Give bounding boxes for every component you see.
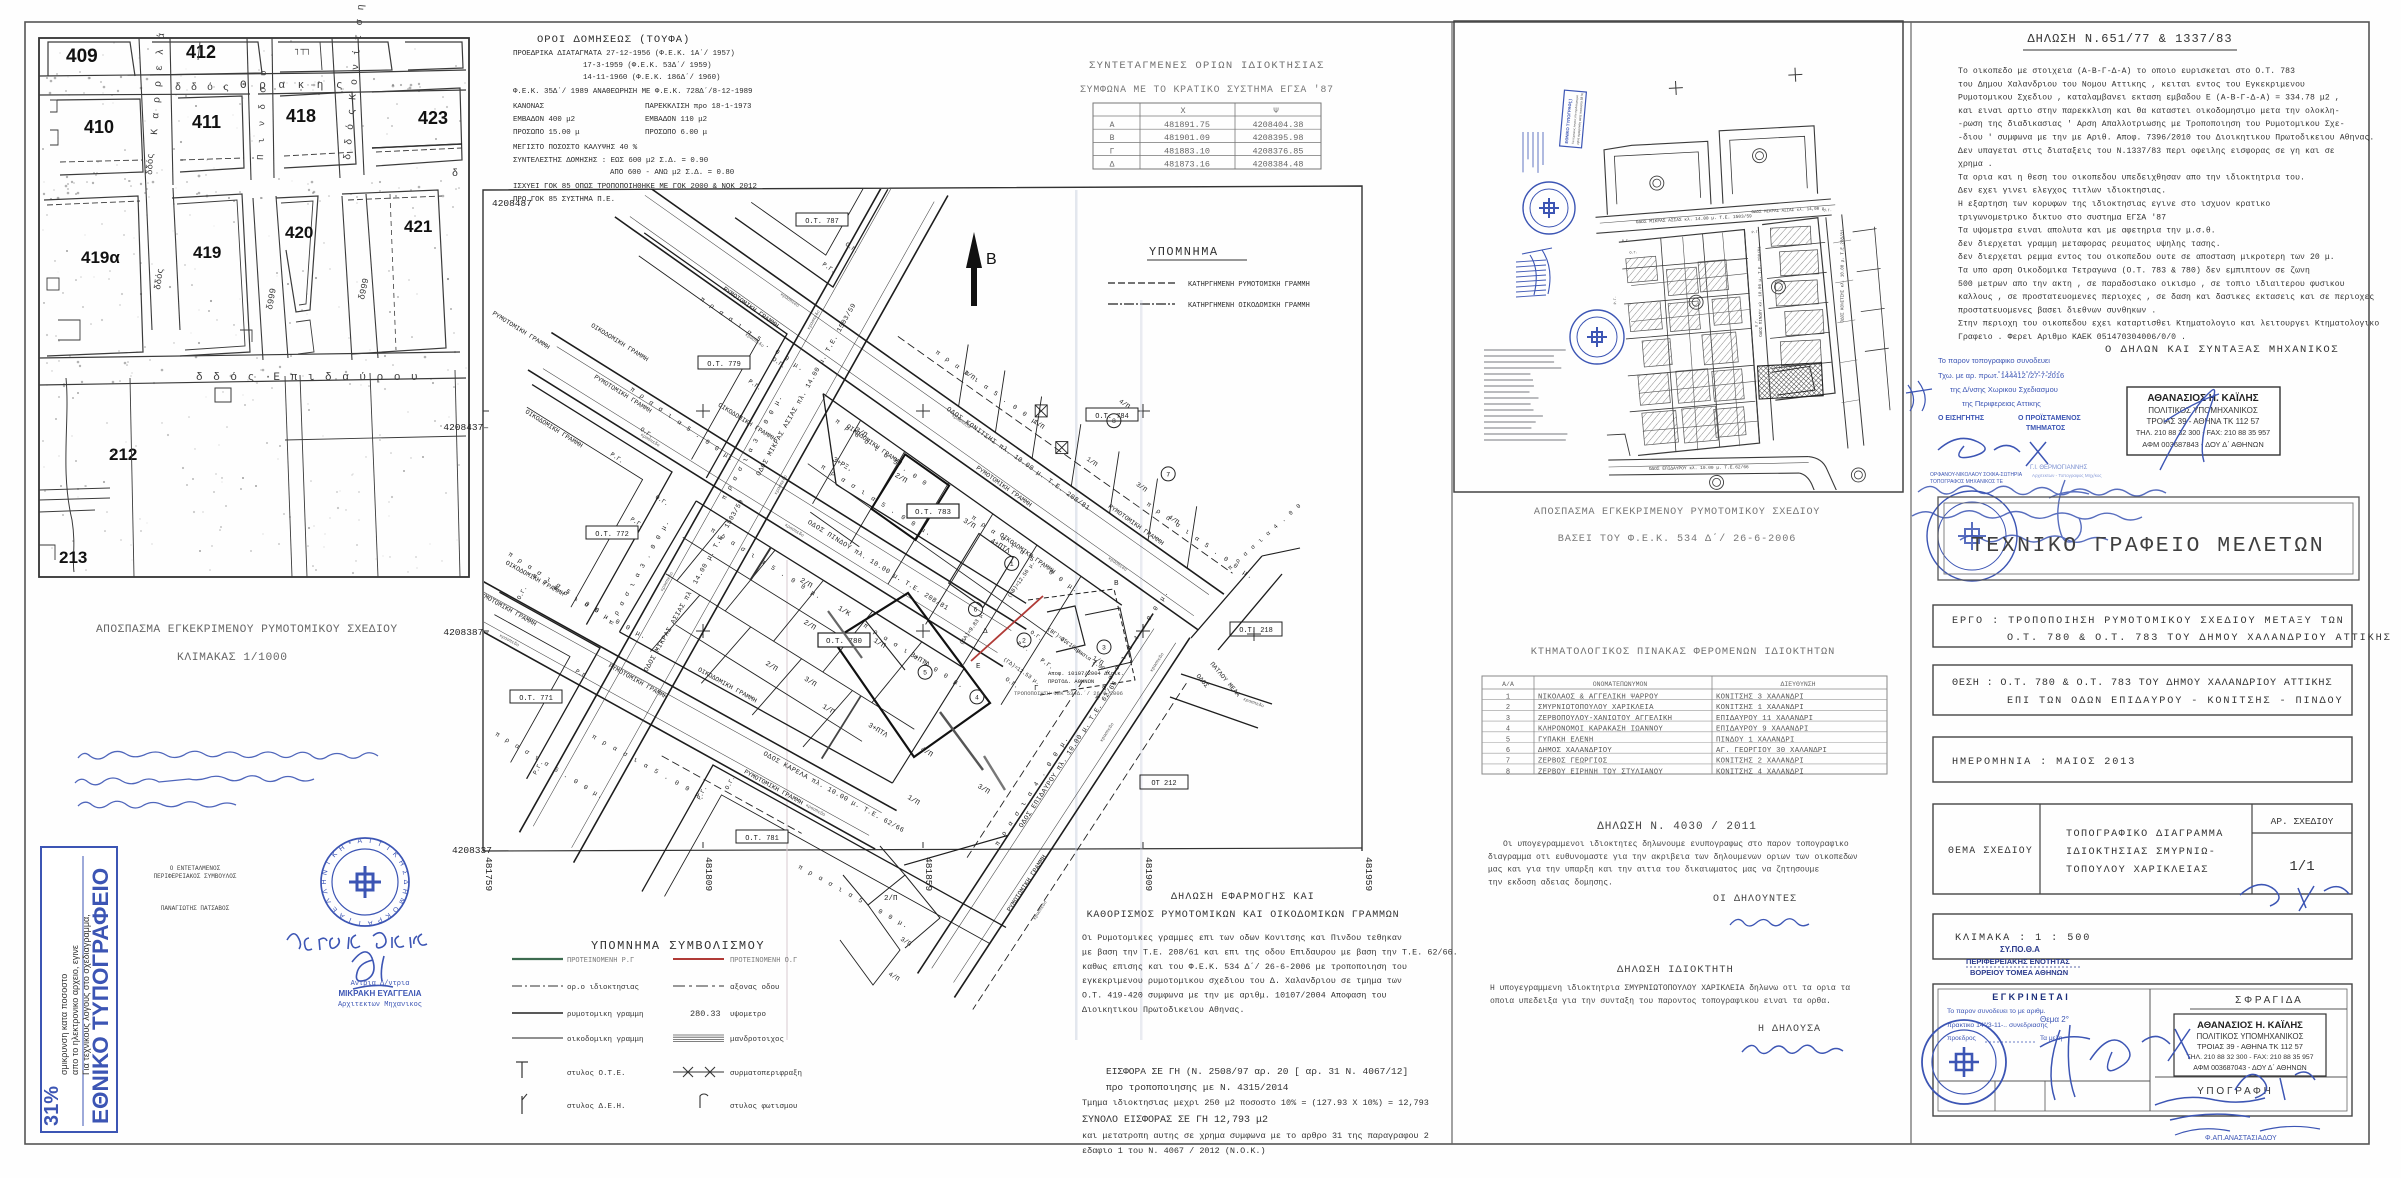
svg-text:5: 5 bbox=[1506, 736, 1510, 744]
svg-text:ΟΔΟΣ ΚΟΝΙΤΣΗΣ κλ. 10.00 μ. Τ.Ε: ΟΔΟΣ ΚΟΝΙΤΣΗΣ κλ. 10.00 μ. Τ.Ε.208/81 bbox=[1840, 229, 1845, 322]
svg-text:ΚΟΝΙΤΣΗΣ 1 ΧΑΛΑΝΔΡΙ: ΚΟΝΙΤΣΗΣ 1 ΧΑΛΑΝΔΡΙ bbox=[1716, 704, 1804, 712]
svg-text:μανδροτοιχος: μανδροτοιχος bbox=[730, 1036, 784, 1044]
svg-text:ΓΥΠΑΚΗ ΕΛΕΝΗ: ΓΥΠΑΚΗ ΕΛΕΝΗ bbox=[1538, 736, 1594, 744]
svg-text:Ρυμοτομικου Σχεδιου , καταλαμβ: Ρυμοτομικου Σχεδιου , καταλαμβανει εκτασ… bbox=[1958, 94, 2340, 103]
svg-text:δ δ ό ς ·Ε π ι δ α ύ ρ ο υ: δ δ ό ς ·Ε π ι δ α ύ ρ ο υ bbox=[196, 372, 420, 384]
svg-text:ΚΑΝΟΝΑΣ: ΚΑΝΟΝΑΣ bbox=[513, 103, 545, 111]
svg-text:8: 8 bbox=[1506, 768, 1510, 776]
svg-text:ΠΟΛΙΤΙΚΟΣ ΥΠΟΜΗΧΑΝΙΚΟΣ: ΠΟΛΙΤΙΚΟΣ ΥΠΟΜΗΧΑΝΙΚΟΣ bbox=[2197, 1032, 2304, 1041]
svg-text:8: 8 bbox=[1112, 418, 1116, 425]
svg-text:διαγραμμα οτι ευθυνομαστε για: διαγραμμα οτι ευθυνομαστε για την ακριβε… bbox=[1488, 853, 1858, 862]
svg-text:ΕΠΙΔΑΥΡΟΥ 9 ΧΑΛΑΝΔΡΙ: ΕΠΙΔΑΥΡΟΥ 9 ΧΑΛΑΝΔΡΙ bbox=[1716, 726, 1809, 734]
svg-text:τριγωνομετρικο δικτυο στο συστ: τριγωνομετρικο δικτυο στο συστημα ΕΓΣΑ '… bbox=[1958, 213, 2166, 222]
svg-text:3: 3 bbox=[1102, 645, 1106, 652]
svg-text:ΕΠΙ ΤΩΝ ΟΔΩΝ ΕΠΙΔΑΥΡΟΥ - ΚΟΝΙΤ: ΕΠΙ ΤΩΝ ΟΔΩΝ ΕΠΙΔΑΥΡΟΥ - ΚΟΝΙΤΣΗΣ - ΠΙΝΔ… bbox=[2007, 696, 2344, 707]
svg-text:Τμημα ιδιοκτησιας μεχρι 250 μ2: Τμημα ιδιοκτησιας μεχρι 250 μ2 ποσοστο 1… bbox=[1082, 1098, 1429, 1108]
svg-text:δ: δ bbox=[452, 168, 458, 180]
svg-text:ΔΗΛΩΣΗ ΕΦΑΡΜΟΓΗΣ ΚΑΙ: ΔΗΛΩΣΗ ΕΦΑΡΜΟΓΗΣ ΚΑΙ bbox=[1171, 892, 1315, 903]
svg-text:δδός: δδός bbox=[145, 153, 156, 175]
svg-text:ΕΘΝΙΚΟ ΤΥΠΟΓΡΑΦΕΙΟ: ΕΘΝΙΚΟ ΤΥΠΟΓΡΑΦΕΙΟ bbox=[88, 868, 113, 1124]
svg-text:ΕΠΙΔΑΥΡΟΥ 11 ΧΑΛΑΝΔΡΙ: ΕΠΙΔΑΥΡΟΥ 11 ΧΑΛΑΝΔΡΙ bbox=[1716, 715, 1813, 723]
svg-text:ΚΟΝΙΤΣΗΣ 4 ΧΑΛΑΝΔΡΙ: ΚΟΝΙΤΣΗΣ 4 ΧΑΛΑΝΔΡΙ bbox=[1716, 768, 1804, 776]
svg-text:ΚΛΙΜΑΚΑ : 1 : 500: ΚΛΙΜΑΚΑ : 1 : 500 bbox=[1955, 933, 2091, 944]
svg-text:ΑΘΑΝΑΣΙΟΣ Η. ΚΑΪΛΗΣ: ΑΘΑΝΑΣΙΟΣ Η. ΚΑΪΛΗΣ bbox=[2197, 1020, 2303, 1031]
svg-text:Γ: Γ bbox=[1110, 147, 1115, 156]
svg-text:ΣΥΝΟΛΟ ΕΙΣΦΟΡΑΣ ΣΕ ΓΗ 12,793 μ: ΣΥΝΟΛΟ ΕΙΣΦΟΡΑΣ ΣΕ ΓΗ 12,793 μ2 bbox=[1082, 1115, 1268, 1126]
svg-text:Ο.Τ. 787: Ο.Τ. 787 bbox=[805, 218, 839, 226]
svg-text:ΘΕΜΑ ΣΧΕΔΙΟΥ: ΘΕΜΑ ΣΧΕΔΙΟΥ bbox=[1948, 845, 2033, 856]
svg-text:ΑΦΜ 003687043 - ΔΟΥ Δ΄ ΑΘΗΝΩΝ: ΑΦΜ 003687043 - ΔΟΥ Δ΄ ΑΘΗΝΩΝ bbox=[2193, 1065, 2306, 1072]
svg-text:Δεν υπαγεται στις διαταξεις το: Δεν υπαγεται στις διαταξεις του Ν.1337/8… bbox=[1958, 147, 2335, 156]
svg-text:ΟΡΦΑΝΟΥ-ΝΙΚΟΛΑΟΥ ΣΟΦΙΑ-ΣΩΤΗΡΙΑ: ΟΡΦΑΝΟΥ-ΝΙΚΟΛΑΟΥ ΣΟΦΙΑ-ΣΩΤΗΡΙΑ bbox=[1930, 472, 2023, 478]
svg-text:212: 212 bbox=[109, 445, 137, 464]
svg-text:4208437–: 4208437– bbox=[443, 422, 489, 433]
svg-text:οποια υπεδειξα για την συνταξη: οποια υπεδειξα για την συνταξη του παρον… bbox=[1490, 997, 1831, 1006]
svg-text:Αρχιτεκτων - Τοπογραφος Μηχ/κο: Αρχιτεκτων - Τοπογραφος Μηχ/κος bbox=[2032, 473, 2102, 478]
svg-text:Ο.Τ. 779: Ο.Τ. 779 bbox=[707, 361, 741, 369]
svg-text:ΚΟΝΙΤΣΗΣ 3 ΧΑΛΑΝΔΡΙ: ΚΟΝΙΤΣΗΣ 3 ΧΑΛΑΝΔΡΙ bbox=[1716, 694, 1804, 702]
svg-text:ΕΡΓΟ : ΤΡΟΠΟΠΟΙΗΣΗ ΡΥΜΟΤΟΜΙΚΟΥ: ΕΡΓΟ : ΤΡΟΠΟΠΟΙΗΣΗ ΡΥΜΟΤΟΜΙΚΟΥ ΣΧΕΔΙΟΥ Μ… bbox=[1952, 616, 2345, 627]
svg-text:31%: 31% bbox=[41, 1086, 63, 1126]
svg-text:ΚΟΝΙΤΣΗΣ 2 ΧΑΛΑΝΔΡΙ: ΚΟΝΙΤΣΗΣ 2 ΧΑΛΑΝΔΡΙ bbox=[1716, 758, 1804, 766]
svg-text:ΣΜΥΡΝΙΩΤΟΠΟΥΛΟΥ ΧΑΡΙΚΛΕΙΑ: ΣΜΥΡΝΙΩΤΟΠΟΥΛΟΥ ΧΑΡΙΚΛΕΙΑ bbox=[1538, 704, 1654, 712]
svg-text:7: 7 bbox=[1506, 758, 1510, 766]
svg-text:με βαση την Τ.Ε. 208/61 και επ: με βαση την Τ.Ε. 208/61 και επι της οδου… bbox=[1082, 947, 1458, 957]
svg-text:ΚΑΤΗΡΓΗΜΕΝΗ ΡΥΜΟΤΟΜΙΚΗ ΓΡΑΜΜΗ: ΚΑΤΗΡΓΗΜΕΝΗ ΡΥΜΟΤΟΜΙΚΗ ΓΡΑΜΜΗ bbox=[1188, 281, 1310, 289]
svg-text:Αντρια Δ/ντρια: Αντρια Δ/ντρια bbox=[351, 980, 410, 988]
svg-text:δεν διερχεται ρεμμα εντος του: δεν διερχεται ρεμμα εντος του οικοπεδου … bbox=[1958, 253, 2335, 262]
svg-text:ΟΤ 212: ΟΤ 212 bbox=[1151, 780, 1176, 788]
svg-text:ΑΠΟΣΠΑΣΜΑ ΕΓΚΕΚΡΙΜΕΝΟΥ ΡΥΜΟΤΟΜ: ΑΠΟΣΠΑΣΜΑ ΕΓΚΕΚΡΙΜΕΝΟΥ ΡΥΜΟΤΟΜΙΚΟΥ ΣΧΕΔΙ… bbox=[1534, 507, 1820, 518]
svg-text:6: 6 bbox=[1506, 747, 1510, 755]
svg-text:ΠΡΟΕΔΡΙΚΑ ΔΙΑΤΑΓΜΑΤΑ 27-12-195: ΠΡΟΕΔΡΙΚΑ ΔΙΑΤΑΓΜΑΤΑ 27-12-1956 (Φ.Ε.Κ. … bbox=[513, 49, 735, 58]
svg-text:απο το ηλεκτρονικο αρχειο, εγι: απο το ηλεκτρονικο αρχειο, εγινε bbox=[70, 945, 80, 1075]
svg-text:2: 2 bbox=[1506, 704, 1510, 712]
svg-text:Γ.Ι. ΘΕΡΜΟΓΙΑΝΝΗΣ: Γ.Ι. ΘΕΡΜΟΓΙΑΝΝΗΣ bbox=[2030, 465, 2088, 471]
svg-text:στυλος Ο.Τ.Ε.: στυλος Ο.Τ.Ε. bbox=[567, 1070, 626, 1078]
svg-text:ΜΕΓΙΣΤΟ ΠΟΣΟΣΤΟ ΚΑΛΥΨΗΣ 40 %: ΜΕΓΙΣΤΟ ΠΟΣΟΣΤΟ ΚΑΛΥΨΗΣ 40 % bbox=[513, 144, 638, 152]
svg-text:ΟΙ ΔΗΛΟΥΝΤΕΣ: ΟΙ ΔΗΛΟΥΝΤΕΣ bbox=[1713, 894, 1797, 905]
svg-text:4208376.85: 4208376.85 bbox=[1252, 146, 1303, 156]
svg-text:πρακτικο 14"/3-11-.. συνεδριασ: πρακτικο 14"/3-11-.. συνεδριασης bbox=[1947, 1022, 2048, 1029]
svg-text:Ε: Ε bbox=[976, 663, 981, 671]
svg-text:ΔΗΛΩΣΗ Ν. 4030 / 2011: ΔΗΛΩΣΗ Ν. 4030 / 2011 bbox=[1597, 821, 1757, 833]
svg-text:481809: 481809 bbox=[703, 857, 714, 892]
svg-text:ΥΠΟΜΝΗΜΑ: ΥΠΟΜΝΗΜΑ bbox=[1149, 245, 1219, 259]
svg-text:-ρωση της διαδικασιας ' Αρση Α: -ρωση της διαδικασιας ' Αρση Απαλλοτριωσ… bbox=[1958, 120, 2345, 129]
svg-text:και μετατροπη αυτης σε χρημα σ: και μετατροπη αυτης σε χρημα συμφωνα με … bbox=[1082, 1131, 1429, 1141]
svg-text:προ τροποποιησης με Ν. 4315/20: προ τροποποιησης με Ν. 4315/2014 bbox=[1106, 1082, 1289, 1093]
svg-text:14-11-1960 (Φ.Ε.Κ. 186Δ΄/ 196: 14-11-1960 (Φ.Ε.Κ. 186Δ΄/ 1960) bbox=[583, 73, 721, 82]
svg-text:ΕΜΒΑΔΟΝ 110 μ2: ΕΜΒΑΔΟΝ 110 μ2 bbox=[645, 116, 707, 124]
svg-text:411: 411 bbox=[192, 112, 221, 132]
svg-text:Φ.Ε.Κ. 35Δ΄/ 1989 ΑΝΑΘΕΩΡΗΣΗ Μ: Φ.Ε.Κ. 35Δ΄/ 1989 ΑΝΑΘΕΩΡΗΣΗ ΜΕ Φ.Ε.Κ. 7… bbox=[513, 87, 753, 96]
svg-text:ΙΔΙΟΚΤΗΣΙΑΣ ΣΜΥΡΝΙΩ-: ΙΔΙΟΚΤΗΣΙΑΣ ΣΜΥΡΝΙΩ- bbox=[2066, 847, 2216, 858]
svg-text:17-3-1959 (Φ.Ε.Κ. 53Δ΄/ 1959): 17-3-1959 (Φ.Ε.Κ. 53Δ΄/ 1959) bbox=[583, 61, 712, 70]
svg-text:ΔΗΛΩΣΗ Ν.651/77 & 1337/83: ΔΗΛΩΣΗ Ν.651/77 & 1337/83 bbox=[2027, 32, 2232, 46]
svg-text:ΑΡ. ΣΧΕΔΙΟΥ: ΑΡ. ΣΧΕΔΙΟΥ bbox=[2271, 816, 2334, 827]
svg-text:ΤΗΛ. 210 88 32 300 - FAX: 210: ΤΗΛ. 210 88 32 300 - FAX: 210 88 35 957 bbox=[2187, 1054, 2314, 1061]
svg-text:500 μετρων απο την ακτη , σε π: 500 μετρων απο την ακτη , σε παραδοσιακο… bbox=[1958, 280, 2345, 289]
svg-text:ΗΜΕΡΟΜΗΝΙΑ : ΜΑΙΟΣ 2013: ΗΜΕΡΟΜΗΝΙΑ : ΜΑΙΟΣ 2013 bbox=[1952, 757, 2136, 768]
svg-text:Ο ΠΡΟΪΣΤΑΜΕΝΟΣ: Ο ΠΡΟΪΣΤΑΜΕΝΟΣ bbox=[2018, 414, 2081, 422]
svg-text:ΠΡΟΤΕΙΝΟΜΕΝΗ Ο.Γ: ΠΡΟΤΕΙΝΟΜΕΝΗ Ο.Γ bbox=[730, 957, 797, 965]
svg-text:Το παρον συνοδευει το με αριθμ: Το παρον συνοδευει το με αριθμ. bbox=[1947, 1008, 2046, 1015]
svg-text:4208387–: 4208387– bbox=[443, 627, 489, 638]
svg-text:Ψ: Ψ bbox=[1273, 106, 1278, 116]
svg-text:ΠΡΟΤΕΙΝΟΜΕΝΗ Ρ.Γ: ΠΡΟΤΕΙΝΟΜΕΝΗ Ρ.Γ bbox=[567, 957, 634, 965]
svg-text:412: 412 bbox=[186, 42, 216, 62]
svg-text:ΠΡΟΣΩΠΟ 6.00 μ: ΠΡΟΣΩΠΟ 6.00 μ bbox=[645, 129, 708, 137]
svg-text:481883.10: 481883.10 bbox=[1164, 146, 1210, 156]
svg-text:421: 421 bbox=[404, 217, 432, 236]
svg-text:481759: 481759 bbox=[483, 857, 494, 892]
svg-text:4208384.48: 4208384.48 bbox=[1252, 160, 1303, 170]
svg-text:Η υπογεγραμμενη ιδιοκτητρια ΣΜ: Η υπογεγραμμενη ιδιοκτητρια ΣΜΥΡΝΙΩΤΟΠΟΥ… bbox=[1490, 984, 1850, 993]
svg-text:ΤΡΟΙΑΣ 39 - ΑΘΗΝΑ ΤΚ 112 57: ΤΡΟΙΑΣ 39 - ΑΘΗΝΑ ΤΚ 112 57 bbox=[2197, 1042, 2303, 1051]
svg-text:και ειναι αρτιο στην παρεκκλισ: και ειναι αρτιο στην παρεκκλιση και θα κ… bbox=[1958, 107, 2340, 116]
svg-text:εδαφιο 1 του Ν. 4067 / 2012 (Ν: εδαφιο 1 του Ν. 4067 / 2012 (Ν.Ο.Κ.) bbox=[1082, 1146, 1266, 1156]
svg-text:ΟΡΟΙ ΔΟΜΗΣΕΩΣ (ΤΟΥΦΑ): ΟΡΟΙ ΔΟΜΗΣΕΩΣ (ΤΟΥΦΑ) bbox=[537, 34, 690, 46]
svg-text:Αποφ. 10107/2004 Διοικ.: Αποφ. 10107/2004 Διοικ. bbox=[1048, 670, 1124, 677]
svg-text:┐┬┐: ┐┬┐ bbox=[294, 45, 311, 55]
svg-text:2/Π: 2/Π bbox=[884, 895, 898, 903]
svg-text:Χ: Χ bbox=[1180, 106, 1185, 116]
svg-text:Ο.Τ. 781: Ο.Τ. 781 bbox=[745, 835, 779, 843]
svg-text:Γραφειο . Φερει Αριθμο ΚΑΕΚ 05: Γραφειο . Φερει Αριθμο ΚΑΕΚ 051470304006… bbox=[1958, 333, 2186, 342]
svg-text:ΣΥ.ΠΟ.Θ.Α: ΣΥ.ΠΟ.Θ.Α bbox=[2000, 945, 2040, 954]
svg-text:481891.75: 481891.75 bbox=[1164, 120, 1210, 130]
svg-text:ΠΡΩΤΟΔ. ΑΘΗΝΩΝ: ΠΡΩΤΟΔ. ΑΘΗΝΩΝ bbox=[1048, 678, 1094, 685]
svg-text:της Περιφερειας Αττικης: της Περιφερειας Αττικης bbox=[1962, 399, 2041, 408]
svg-text:-διου ' συμφωνα με την με Αριθ: -διου ' συμφωνα με την με Αριθ. Αποφ. 73… bbox=[1958, 134, 2374, 143]
svg-text:ΚΑΤΗΡΓΗΜΕΝΗ ΟΙΚΟΔΟΜΙΚΗ ΓΡΑΜΜΗ: ΚΑΤΗΡΓΗΜΕΝΗ ΟΙΚΟΔΟΜΙΚΗ ΓΡΑΜΜΗ bbox=[1188, 302, 1310, 310]
svg-text:Ο ΔΗΛΩΝ ΚΑΙ ΣΥΝΤΑΞΑΣ ΜΗΧΑΝΙΚΟΣ: Ο ΔΗΛΩΝ ΚΑΙ ΣΥΝΤΑΞΑΣ ΜΗΧΑΝΙΚΟΣ bbox=[2105, 344, 2339, 356]
svg-text:ΑΠΟΣΠΑΣΜΑ ΕΓΚΕΚΡΙΜΕΝΟΥ ΡΥΜΟΤΟΜ: ΑΠΟΣΠΑΣΜΑ ΕΓΚΕΚΡΙΜΕΝΟΥ ΡΥΜΟΤΟΜΙΚΟΥ ΣΧΕΔΙ… bbox=[96, 624, 398, 636]
svg-text:ΖΕΡΒΟΠΟΥΛΟΥ-ΧΑΝΙΩΤΟΥ ΑΓΓΕΛΙΚΗ: ΖΕΡΒΟΠΟΥΛΟΥ-ΧΑΝΙΩΤΟΥ ΑΓΓΕΛΙΚΗ bbox=[1538, 715, 1672, 723]
svg-text:4208487: 4208487 bbox=[492, 198, 532, 209]
svg-text:1/1: 1/1 bbox=[2289, 859, 2314, 875]
svg-text:ΝΙΚΟΛΑΟΣ & ΑΓΓΕΛΙΚΗ ΨΑΡΡΟΥ: ΝΙΚΟΛΑΟΣ & ΑΓΓΕΛΙΚΗ ΨΑΡΡΟΥ bbox=[1538, 694, 1659, 702]
svg-text:Οι υπογεγραμμενοι ιδιοκτητες δ: Οι υπογεγραμμενοι ιδιοκτητες δηλωνουμε ε… bbox=[1503, 840, 1849, 849]
svg-text:481901.09: 481901.09 bbox=[1164, 133, 1210, 143]
svg-text:ΒΑΣΕΙ ΤΟΥ Φ.Ε.Κ. 534 Δ΄/ 26-6-: ΒΑΣΕΙ ΤΟΥ Φ.Ε.Κ. 534 Δ΄/ 26-6-2006 bbox=[1558, 532, 1796, 545]
svg-text:χρημα .: χρημα . bbox=[1958, 160, 1993, 169]
svg-text:ΠΑΡΕΚΚΛΙΣΗ προ 18-1-1973: ΠΑΡΕΚΚΛΙΣΗ προ 18-1-1973 bbox=[645, 103, 751, 111]
svg-text:υψομετρο: υψομετρο bbox=[730, 1011, 767, 1019]
svg-text:ΣΥΝΤΕΛΕΣΤΗΣ ΔΟΜΗΣΗΣ : ΕΩΣ 600: ΣΥΝΤΕΛΕΣΤΗΣ ΔΟΜΗΣΗΣ : ΕΩΣ 600 μ2 Σ.Δ. = … bbox=[513, 157, 708, 165]
svg-text:Β: Β bbox=[1114, 580, 1119, 588]
svg-text:Αρχιτεκτων Μηχανικος: Αρχιτεκτων Μηχανικος bbox=[338, 1001, 422, 1009]
svg-text:καλλους , σε προστατευομενες π: καλλους , σε προστατευομενες περιοχες , … bbox=[1958, 293, 2374, 302]
svg-text:προεδρος: προεδρος bbox=[1947, 1035, 1976, 1042]
svg-text:Διοικητικου Πρωτοδικειου Αθηνα: Διοικητικου Πρωτοδικειου Αθηνας. bbox=[1082, 1005, 1245, 1015]
svg-text:Οι Ρυμοτομικες γραμμες επι των: Οι Ρυμοτομικες γραμμες επι των οδων Κονι… bbox=[1082, 933, 1402, 943]
svg-text:280.33: 280.33 bbox=[690, 1009, 721, 1019]
svg-text:Τα υπο αρση Οικοδομικα Τετραγω: Τα υπο αρση Οικοδομικα Τετραγωνα (Ο.Τ. 7… bbox=[1958, 267, 2310, 276]
svg-text:ΠΕΡΙΦΕΡΕΙΑΚΗΣ ΕΝΟΤΗΤΑΣ: ΠΕΡΙΦΕΡΕΙΑΚΗΣ ΕΝΟΤΗΤΑΣ bbox=[1966, 957, 2070, 966]
svg-text:Ο ΕΙΣΗΓΗΤΗΣ: Ο ΕΙΣΗΓΗΤΗΣ bbox=[1938, 415, 1984, 422]
svg-text:Ο.Τ. 771: Ο.Τ. 771 bbox=[519, 695, 553, 703]
svg-text:213: 213 bbox=[59, 548, 87, 567]
svg-text:στυλος Δ.Ε.Η.: στυλος Δ.Ε.Η. bbox=[567, 1103, 626, 1111]
svg-text:εγκεκριμενου ρυμοτομικου σχεδι: εγκεκριμενου ρυμοτομικου σχεδιου του Δ. … bbox=[1082, 976, 1402, 986]
svg-text:481873.16: 481873.16 bbox=[1164, 160, 1210, 170]
svg-text:Δ: Δ bbox=[1110, 161, 1115, 170]
svg-text:4208337: 4208337 bbox=[452, 845, 492, 856]
svg-text:Ε Γ Κ Ρ Ι Ν Ε Τ Α Ι: Ε Γ Κ Ρ Ι Ν Ε Τ Α Ι bbox=[1992, 992, 2068, 1002]
svg-text:420: 420 bbox=[285, 223, 313, 242]
svg-text:ΤΟΠΟΥΛΟΥ ΧΑΡΙΚΛΕΙΑΣ: ΤΟΠΟΥΛΟΥ ΧΑΡΙΚΛΕΙΑΣ bbox=[2066, 865, 2209, 876]
svg-text:ΤΡΟΠΟΠΟΙΗΣΗ ΦΕΚ 534Δ.΄/ 26-6-2: ΤΡΟΠΟΠΟΙΗΣΗ ΦΕΚ 534Δ.΄/ 26-6-2006 bbox=[1014, 690, 1123, 697]
svg-text:4: 4 bbox=[975, 694, 979, 701]
svg-text:Ο.Τ. 218: Ο.Τ. 218 bbox=[1239, 627, 1273, 635]
svg-text:Ο.Τ. 780 & Ο.Τ. 783 ΤΟΥ ΔΗΜΟΥ: Ο.Τ. 780 & Ο.Τ. 783 ΤΟΥ ΔΗΜΟΥ ΧΑΛΑΝΔΡΙΟΥ… bbox=[2007, 633, 2392, 644]
svg-text:ΑΘΑΝΑΣΙΟΣ Η. ΚΑΪΛΗΣ: ΑΘΑΝΑΣΙΟΣ Η. ΚΑΪΛΗΣ bbox=[2147, 391, 2258, 404]
svg-text:ΚΑΘΟΡΙΣΜΟΣ ΡΥΜΟΤΟΜΙΚΩΝ ΚΑΙ ΟΙΚ: ΚΑΘΟΡΙΣΜΟΣ ΡΥΜΟΤΟΜΙΚΩΝ ΚΑΙ ΟΙΚΟΔΟΜΙΚΩΝ Γ… bbox=[1087, 910, 1400, 921]
svg-text:ΕΙΣΦΟΡΑ ΣΕ ΓΗ (Ν. 2508/97 αρ.: ΕΙΣΦΟΡΑ ΣΕ ΓΗ (Ν. 2508/97 αρ. 20 [ αρ. 3… bbox=[1106, 1066, 1408, 1077]
svg-text:προστατευομενες βασει διεθνων: προστατευομενες βασει διεθνων συνθηκων . bbox=[1958, 306, 2156, 315]
svg-text:Φ.ΑΠ.ΑΝΑΣΤΑΣΙΑΔΟΥ: Φ.ΑΠ.ΑΝΑΣΤΑΣΙΑΔΟΥ bbox=[2205, 1135, 2277, 1142]
svg-text:ΚΛΙΜΑΚΑΣ 1/1000: ΚΛΙΜΑΚΑΣ 1/1000 bbox=[177, 652, 288, 664]
svg-text:Το παρον τοπογραφικο συνοδευει: Το παρον τοπογραφικο συνοδευει bbox=[1938, 356, 2050, 365]
svg-text:1: 1 bbox=[1506, 694, 1510, 702]
svg-text:ορ.ο ιδιοκτησιας: ορ.ο ιδιοκτησιας bbox=[567, 984, 639, 992]
svg-text:4208395.98: 4208395.98 bbox=[1252, 133, 1303, 143]
svg-text:καθως επισης και του Φ.Ε.Κ. 53: καθως επισης και του Φ.Ε.Κ. 534 Δ΄/ 26-6… bbox=[1082, 961, 1407, 972]
svg-text:4208404.38: 4208404.38 bbox=[1252, 120, 1303, 130]
svg-text:ΑΓ. ΓΕΩΡΓΙΟΥ 30 ΧΑΛΑΝΔΡΙ: ΑΓ. ΓΕΩΡΓΙΟΥ 30 ΧΑΛΑΝΔΡΙ bbox=[1716, 747, 1827, 755]
svg-text:την εκδοση αδειας δομησης.: την εκδοση αδειας δομησης. bbox=[1488, 878, 1613, 887]
svg-text:ΤΟΠΟΓΡΑΦΟΣ ΜΗΧΑΝΙΚΟΣ ΤΕ: ΤΟΠΟΓΡΑΦΟΣ ΜΗΧΑΝΙΚΟΣ ΤΕ bbox=[1930, 479, 2004, 485]
svg-text:ΜΙΚΡΑΚΗ ΕΥΑΓΓΕΛΙΑ: ΜΙΚΡΑΚΗ ΕΥΑΓΓΕΛΙΑ bbox=[339, 989, 422, 998]
svg-text:σμικρυνση κατα ποσοστο: σμικρυνση κατα ποσοστο bbox=[59, 974, 69, 1075]
svg-text:Ο.Γ.: Ο.Γ. bbox=[1755, 319, 1759, 327]
svg-text:6: 6 bbox=[974, 607, 978, 614]
svg-text:410: 410 bbox=[84, 117, 114, 137]
svg-text:αξονας οδου: αξονας οδου bbox=[730, 984, 780, 992]
svg-text:Για τεχνικους λογους στο σχεδι: Για τεχνικους λογους στο σχεδιαγραμμα, bbox=[81, 914, 91, 1075]
svg-text:ΠΡΟΣΩΠΟ 15.00 μ: ΠΡΟΣΩΠΟ 15.00 μ bbox=[513, 129, 580, 137]
svg-text:οικοδομικη γραμμη: οικοδομικη γραμμη bbox=[567, 1036, 644, 1044]
svg-text:ΖΕΡΒΟΥ ΕΙΡΗΝΗ ΤΟΥ ΣΤΥΛΙΑΝΟΥ: ΖΕΡΒΟΥ ΕΙΡΗΝΗ ΤΟΥ ΣΤΥΛΙΑΝΟΥ bbox=[1538, 768, 1663, 776]
svg-text:ΖΕΡΒΟΣ ΓΕΩΡΓΙΟΣ: ΖΕΡΒΟΣ ΓΕΩΡΓΙΟΣ bbox=[1538, 758, 1608, 766]
svg-text:ΘΕΣΗ : Ο.Τ. 780 & Ο.Τ. 783 ΤΟΥ: ΘΕΣΗ : Ο.Τ. 780 & Ο.Τ. 783 ΤΟΥ ΔΗΜΟΥ ΧΑΛ… bbox=[1952, 678, 2332, 689]
svg-text:Τχω. με αρ. πρωτ. 144412 /27-7: Τχω. με αρ. πρωτ. 144412 /27-7-2016 bbox=[1938, 371, 2064, 380]
svg-text:Ο.Γ.: Ο.Γ. bbox=[1823, 209, 1832, 213]
svg-text:ρυμοτομικη γραμμη: ρυμοτομικη γραμμη bbox=[567, 1011, 644, 1019]
svg-text:4: 4 bbox=[1506, 726, 1510, 734]
svg-text:Ο.Τ. 780: Ο.Τ. 780 bbox=[826, 638, 863, 646]
svg-text:στυλος φωτισμου: στυλος φωτισμου bbox=[730, 1103, 798, 1111]
svg-text:Τα ορια και η θεση του οικοπεδ: Τα ορια και η θεση του οικοπεδου υπεδειχ… bbox=[1958, 173, 2305, 182]
svg-text:Ο.Γ.: Ο.Γ. bbox=[1629, 251, 1638, 255]
svg-text:7: 7 bbox=[1166, 471, 1170, 478]
svg-text:ΣΥΜΦΩΝΑ ΜΕ ΤΟ ΚΡΑΤΙΚΟ ΣΥΣΤΗΜΑ: ΣΥΜΦΩΝΑ ΜΕ ΤΟ ΚΡΑΤΙΚΟ ΣΥΣΤΗΜΑ ΕΓΣΑ '87 bbox=[1080, 84, 1334, 95]
svg-text:Ο.Τ. 419-420 συμφωνα με την με: Ο.Τ. 419-420 συμφωνα με την με αριθμ. 10… bbox=[1082, 991, 1387, 1001]
svg-text:Δ: Δ bbox=[402, 880, 409, 885]
svg-text:Ο ΕΝΤΕΤΑΛΜΕΝΟΣ: Ο ΕΝΤΕΤΑΛΜΕΝΟΣ bbox=[170, 865, 221, 872]
svg-text:ΤΜΗΜΑΤΟΣ: ΤΜΗΜΑΤΟΣ bbox=[2026, 425, 2065, 432]
svg-text:3: 3 bbox=[1506, 715, 1510, 723]
svg-text:B: B bbox=[986, 251, 997, 268]
svg-text:409: 409 bbox=[66, 46, 98, 67]
svg-text:481959: 481959 bbox=[1363, 857, 1374, 892]
svg-text:ΒΟΡΕΙΟΥ ΤΟΜΕΑ ΑΘΗΝΩΝ: ΒΟΡΕΙΟΥ ΤΟΜΕΑ ΑΘΗΝΩΝ bbox=[1970, 968, 2068, 977]
svg-text:Η: Η bbox=[321, 879, 328, 884]
svg-text:Τα υψομετρα ειναι απολυτα και: Τα υψομετρα ειναι απολυτα και με αφετηρι… bbox=[1958, 227, 2216, 236]
svg-text:ΚΛΗΡΟΝΟΜΟΙ ΚΑΡΑΚΑΣΗ ΙΩΑΝΝΟΥ: ΚΛΗΡΟΝΟΜΟΙ ΚΑΡΑΚΑΣΗ ΙΩΑΝΝΟΥ bbox=[1538, 726, 1663, 734]
svg-text:ΟΝΟΜΑΤΕΠΩΝΥΜΟΝ: ΟΝΟΜΑΤΕΠΩΝΥΜΟΝ bbox=[1593, 681, 1648, 688]
svg-text:5: 5 bbox=[923, 670, 927, 677]
svg-text:481909: 481909 bbox=[1143, 857, 1154, 892]
svg-text:δεν διερχεται γραμμη μεταφορας: δεν διερχεται γραμμη μεταφορας ρευματος … bbox=[1958, 240, 2221, 249]
svg-text:Δ: Δ bbox=[983, 628, 988, 636]
svg-text:ΤΕΧΝΙΚΟ ΓΡΑΦΕΙΟ ΜΕΛΕΤΩΝ: ΤΕΧΝΙΚΟ ΓΡΑΦΕΙΟ ΜΕΛΕΤΩΝ bbox=[1971, 534, 2325, 558]
svg-text:419α: 419α bbox=[81, 248, 120, 267]
svg-text:423: 423 bbox=[418, 108, 448, 128]
svg-text:Δεν εχει γινει ελεγχος τιτλων: Δεν εχει γινει ελεγχος τιτλων ιδιοκτησια… bbox=[1958, 187, 2166, 196]
svg-text:Ρ.Γ.: Ρ.Γ. bbox=[1614, 296, 1618, 304]
svg-text:ΑΠΟ 600 - ΑΝΩ μ2 Σ.Δ. = 0.80: ΑΠΟ 600 - ΑΝΩ μ2 Σ.Δ. = 0.80 bbox=[610, 169, 734, 177]
svg-text:ΤΟΠΟΓΡΑΦΙΚΟ ΔΙΑΓΡΑΜΜΑ: ΤΟΠΟΓΡΑΦΙΚΟ ΔΙΑΓΡΑΜΜΑ bbox=[2066, 829, 2224, 840]
svg-text:419: 419 bbox=[193, 243, 221, 262]
svg-text:ΔΗΛΩΣΗ ΙΔΙΟΚΤΗΤΗ: ΔΗΛΩΣΗ ΙΔΙΟΚΤΗΤΗ bbox=[1617, 964, 1734, 976]
svg-text:Β: Β bbox=[1110, 134, 1115, 143]
svg-text:ΠΙΝΔΟΥ 1 ΧΑΛΑΝΔΡΙ: ΠΙΝΔΟΥ 1 ΧΑΛΑΝΔΡΙ bbox=[1716, 736, 1795, 744]
svg-text:Σ Φ Ρ Α Γ Ι Δ Α: Σ Φ Ρ Α Γ Ι Δ Α bbox=[2235, 995, 2301, 1006]
svg-text:Ο.Τ. 783: Ο.Τ. 783 bbox=[915, 509, 952, 517]
svg-text:ΔΙΕΥΘΥΝΣΗ: ΔΙΕΥΘΥΝΣΗ bbox=[1780, 681, 1815, 688]
svg-text:ΚΤΗΜΑΤΟΛΟΓΙΚΟΣ ΠΙΝΑΚΑΣ ΦΕΡΟΜΕΝ: ΚΤΗΜΑΤΟΛΟΓΙΚΟΣ ΠΙΝΑΚΑΣ ΦΕΡΟΜΕΝΩΝ ΙΔΙΟΚΤΗ… bbox=[1531, 646, 1835, 658]
svg-text:Η εξαρτηση των κορυφων της ιδι: Η εξαρτηση των κορυφων της ιδιοκτησιας ε… bbox=[1958, 200, 2270, 209]
svg-text:Α/Α: Α/Α bbox=[1502, 681, 1514, 688]
svg-text:2: 2 bbox=[1022, 638, 1026, 645]
svg-text:Στην περιοχη του οικοπεδου εχε: Στην περιοχη του οικοπεδου εχει καταρτισ… bbox=[1958, 320, 2379, 329]
svg-text:Α: Α bbox=[1110, 121, 1115, 130]
svg-text:ΔΗΜΟΣ ΧΑΛΑΝΔΡΙΟΥ: ΔΗΜΟΣ ΧΑΛΑΝΔΡΙΟΥ bbox=[1538, 747, 1612, 755]
svg-text:Η ΔΗΛΟΥΣΑ: Η ΔΗΛΟΥΣΑ bbox=[1758, 1024, 1821, 1035]
svg-text:Το οικοπεδο με στοιχεια (Α-Β-Γ: Το οικοπεδο με στοιχεια (Α-Β-Γ-Δ-Α) το ο… bbox=[1958, 67, 2295, 76]
svg-text:ΤΡΟΙΑΣ 39 - ΑΘΗΝΑ ΤΚ 112 57: ΤΡΟΙΑΣ 39 - ΑΘΗΝΑ ΤΚ 112 57 bbox=[2147, 417, 2261, 426]
svg-text:ΕΜΒΑΔΟΝ 400 μ2: ΕΜΒΑΔΟΝ 400 μ2 bbox=[513, 116, 575, 124]
svg-text:ΠΑΝΑΓΙΩΤΗΣ ΠΑΤΣΑΒΟΣ: ΠΑΝΑΓΙΩΤΗΣ ΠΑΤΣΑΒΟΣ bbox=[161, 905, 230, 912]
svg-text:418: 418 bbox=[286, 106, 316, 126]
svg-text:του Δημου Χαλανδριου του Νομου: του Δημου Χαλανδριου του Νομου Αττικης ,… bbox=[1958, 80, 2305, 89]
svg-text:ΥΠΟΜΝΗΜΑ ΣΥΜΒΟΛΙΣΜΟΥ: ΥΠΟΜΝΗΜΑ ΣΥΜΒΟΛΙΣΜΟΥ bbox=[591, 939, 765, 953]
svg-text:ΠΕΡΙΦΕΡΕΙΑΚΟΣ ΣΥΜΒΟΥΛΟΣ: ΠΕΡΙΦΕΡΕΙΑΚΟΣ ΣΥΜΒΟΥΛΟΣ bbox=[154, 873, 237, 880]
svg-text:Ο.Τ. 772: Ο.Τ. 772 bbox=[595, 531, 629, 539]
svg-text:δ δ ό ς: δ δ ό ς bbox=[175, 82, 231, 94]
svg-text:της Δ/νσης Χωρικου Σχεδιασμου: της Δ/νσης Χωρικου Σχεδιασμου bbox=[1950, 385, 2058, 394]
svg-text:Ρ.Γ.: Ρ.Γ. bbox=[1751, 231, 1760, 235]
svg-text:Θ ρ α κ η ς: Θ ρ α κ η ς bbox=[240, 80, 346, 92]
svg-text:μας και για την υπαρξη και την: μας και για την υπαρξη και την αιτια του… bbox=[1488, 866, 1819, 875]
svg-text:1: 1 bbox=[1010, 561, 1014, 568]
svg-text:Θεμα 2°: Θεμα 2° bbox=[2040, 1015, 2069, 1024]
svg-text:Ρ.Γ.: Ρ.Γ. bbox=[1622, 240, 1631, 244]
svg-text:ΣΥΝΤΕΤΑΓΜΕΝΕΣ ΟΡΙΩΝ ΙΔΙΟΚΤΗΣΙΑ: ΣΥΝΤΕΤΑΓΜΕΝΕΣ ΟΡΙΩΝ ΙΔΙΟΚΤΗΣΙΑΣ bbox=[1089, 60, 1325, 72]
svg-text:συρματοπεριφραξη: συρματοπεριφραξη bbox=[730, 1070, 802, 1078]
svg-text:ΠΟΛΙΤΙΚΟΣ ΥΠΟΜΗΧΑΝΙΚΟΣ: ΠΟΛΙΤΙΚΟΣ ΥΠΟΜΗΧΑΝΙΚΟΣ bbox=[2148, 406, 2258, 415]
